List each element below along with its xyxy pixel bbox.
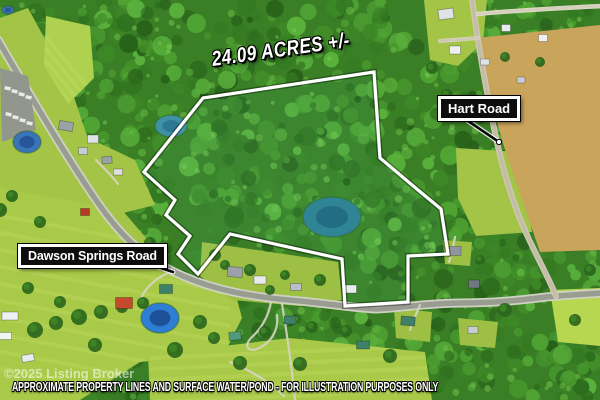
house <box>79 148 88 155</box>
house <box>438 8 454 20</box>
house <box>227 266 243 277</box>
house <box>88 135 99 143</box>
parking-pond <box>13 131 41 153</box>
house <box>254 276 266 284</box>
house <box>468 327 478 334</box>
dawson-springs-road-label: Dawson Springs Road <box>18 244 167 268</box>
house <box>58 120 73 131</box>
house <box>469 280 480 288</box>
house <box>102 156 113 164</box>
house <box>450 46 461 54</box>
house <box>116 298 133 309</box>
house <box>229 331 242 340</box>
disclaimer-text: APPROXIMATE PROPERTY LINES AND SURFACE W… <box>12 380 438 394</box>
house <box>291 284 302 291</box>
house <box>502 25 511 32</box>
hart-road-label: Hart Road <box>438 96 520 121</box>
house <box>284 316 296 324</box>
house <box>0 333 12 340</box>
house <box>81 209 90 216</box>
house <box>2 312 18 320</box>
house <box>517 77 525 83</box>
house <box>357 341 370 349</box>
listing-aerial-image: 24.09 ACRES +/- Hart Road Dawson Springs… <box>0 0 600 400</box>
house <box>401 316 416 326</box>
aerial-photo <box>0 0 600 400</box>
corner-pool <box>2 6 14 14</box>
house <box>481 59 490 65</box>
house <box>160 285 173 294</box>
house <box>21 354 34 363</box>
house <box>114 169 123 175</box>
copyright-watermark: ©2025 Listing Broker <box>4 366 134 381</box>
house <box>539 35 548 42</box>
